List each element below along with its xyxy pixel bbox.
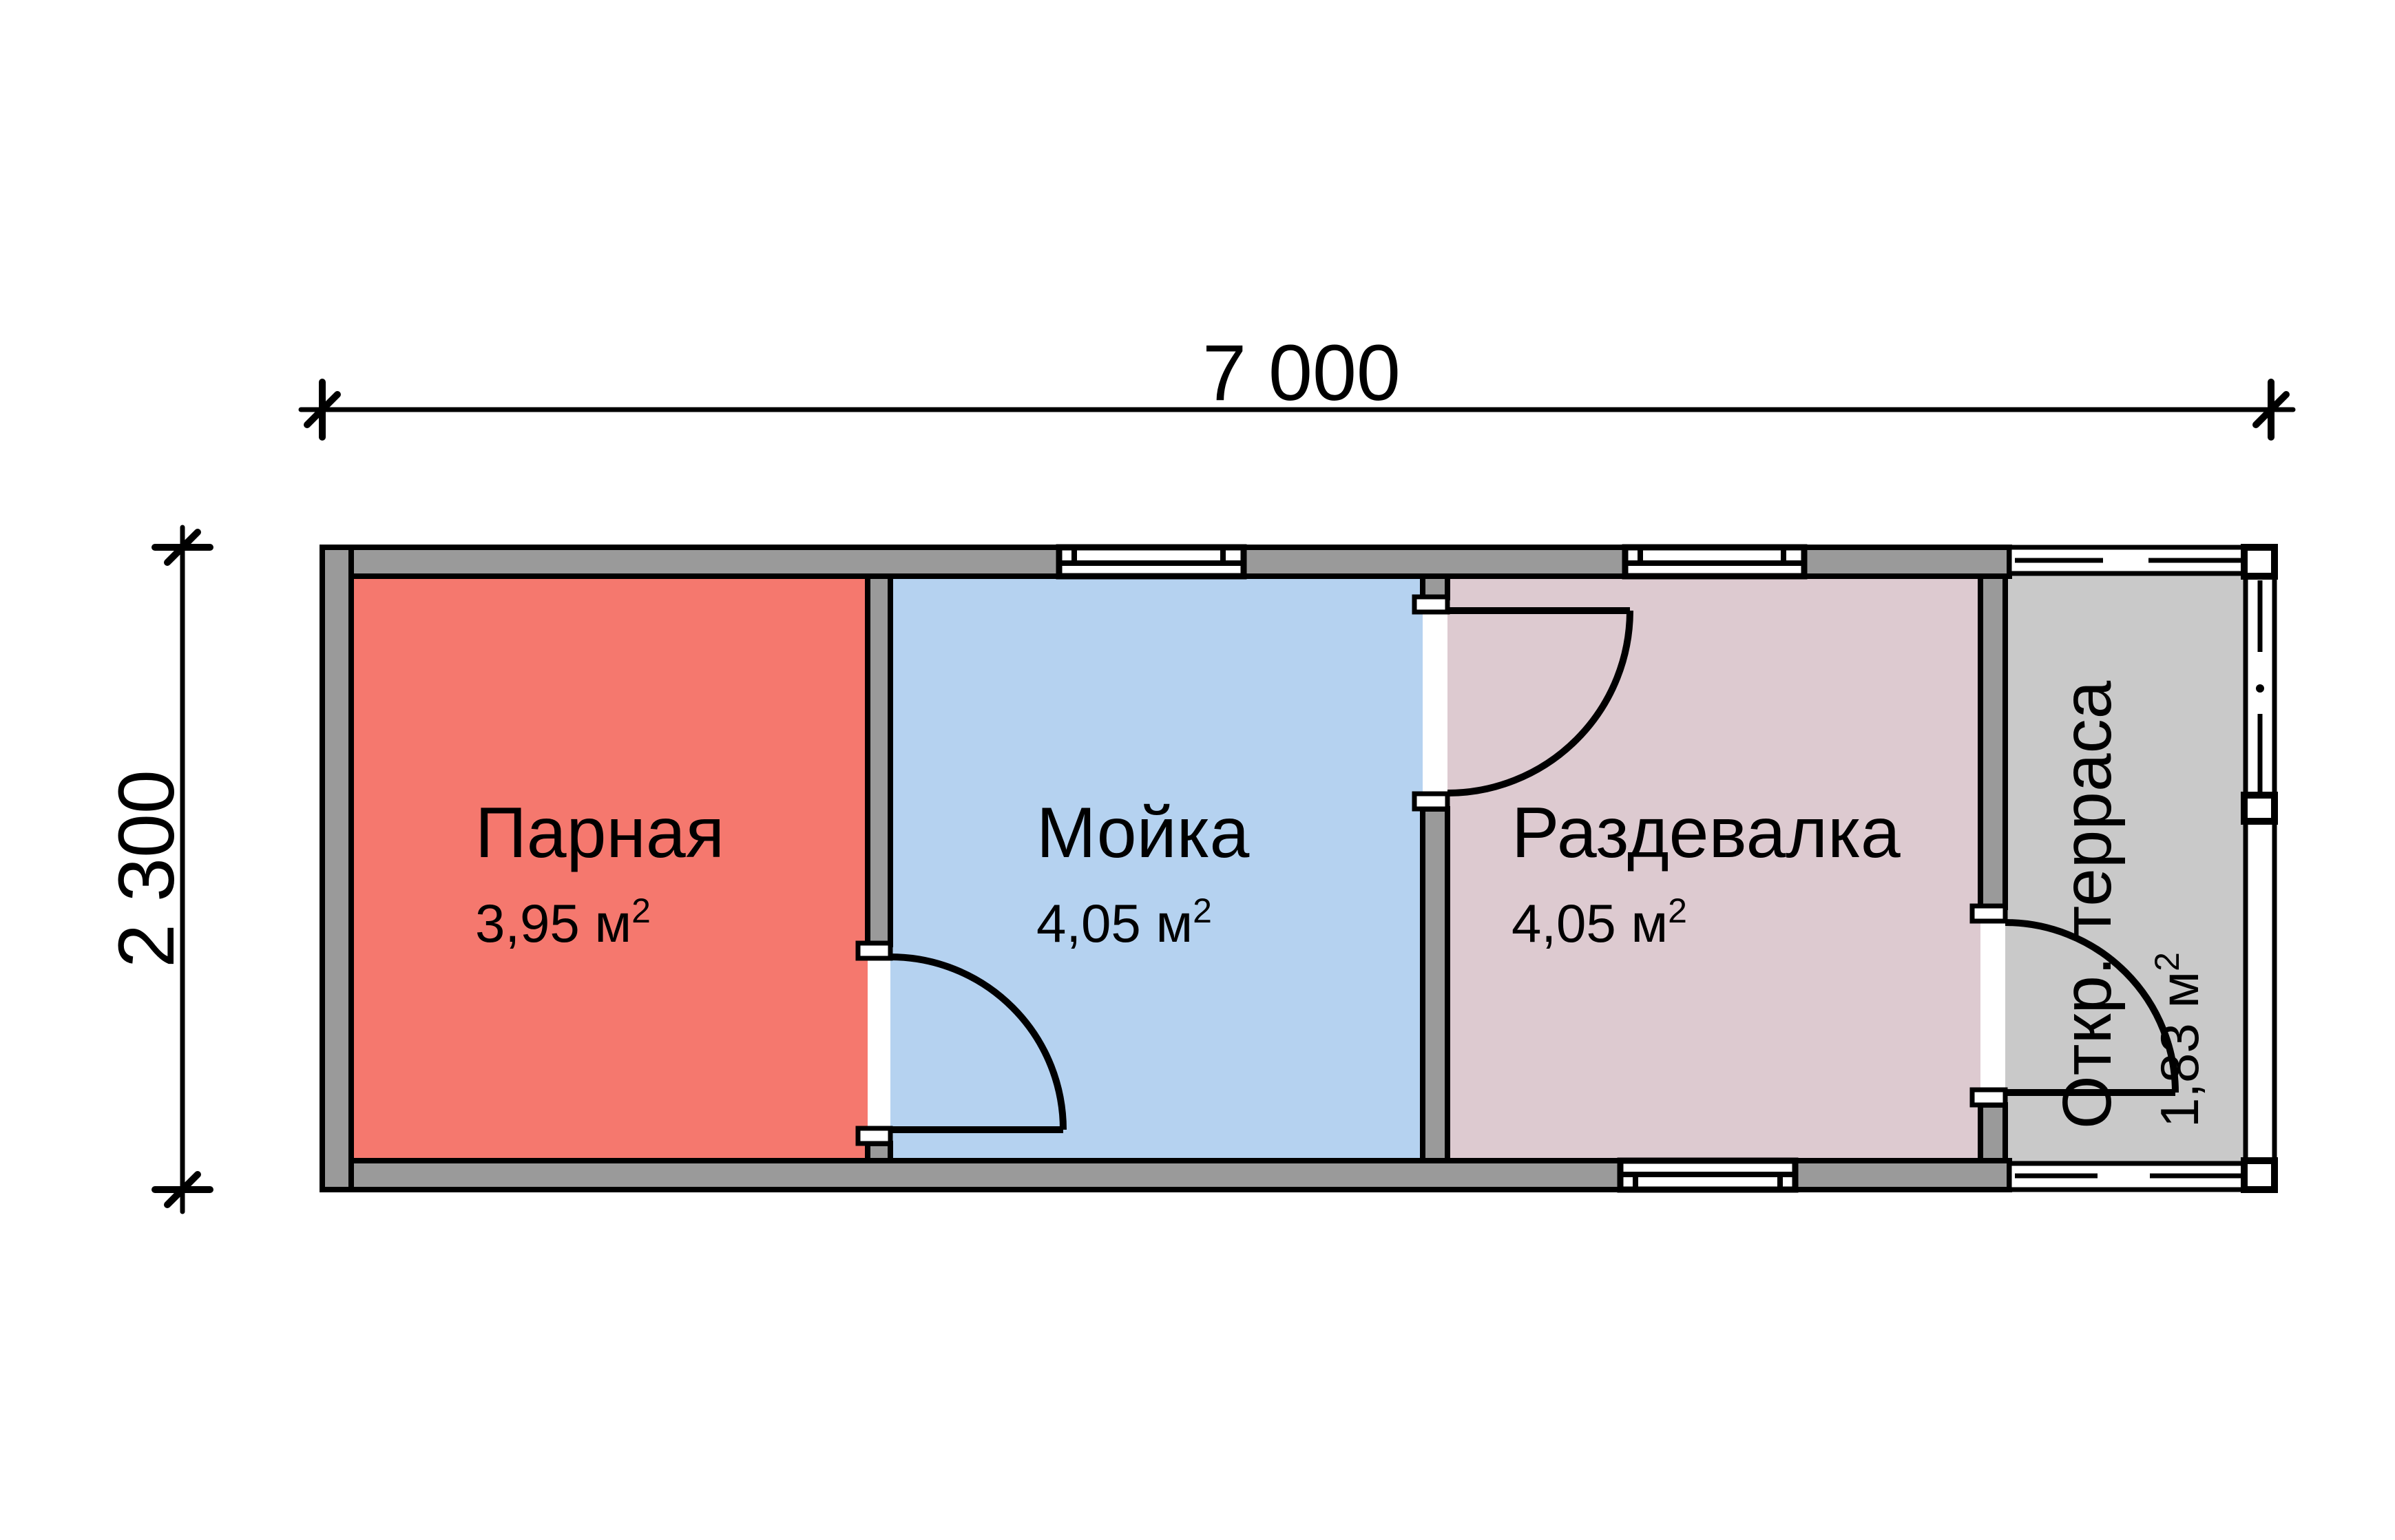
label-terrace: Откр. терраса xyxy=(2049,680,2126,1129)
wall-moyka-razdevalka-upper xyxy=(1423,576,1447,598)
dimension-height-label: 2 300 xyxy=(103,770,191,968)
wall-razdevalka-terrace-upper xyxy=(1980,576,2005,907)
area-razdevalka: 4,05 м2 xyxy=(1512,892,1687,953)
window-top-razdevalka xyxy=(1625,547,1804,576)
wall-parnaya-moyka-upper xyxy=(868,576,890,945)
label-moyka: Мойка xyxy=(1036,793,1250,873)
window-bottom-razdevalka xyxy=(1620,1161,1795,1190)
area-moyka: 4,05 м2 xyxy=(1036,892,1212,953)
terrace-post-bottom xyxy=(2244,1161,2274,1190)
railing-dot xyxy=(2256,684,2264,693)
wall-razdevalka-terrace-lower xyxy=(1980,1105,2005,1161)
label-parnaya: Парная xyxy=(475,793,724,873)
wall-left xyxy=(322,547,351,1190)
label-razdevalka: Раздевалка xyxy=(1512,793,1901,873)
dimension-height: 2 300 xyxy=(103,527,210,1212)
terrace-post-middle xyxy=(2244,795,2274,821)
floor-plan-drawing: 7 000 2 300 Парная 3,95 м2 Мойка 4,05 м2… xyxy=(0,0,2395,1540)
dimension-width-label: 7 000 xyxy=(1202,329,1401,417)
floor-plan-page: 7 000 2 300 Парная 3,95 м2 Мойка 4,05 м2… xyxy=(0,0,2395,1540)
area-terrace: 1,83 м2 xyxy=(2148,952,2210,1128)
area-parnaya: 3,95 м2 xyxy=(475,892,651,953)
wall-moyka-razdevalka-lower xyxy=(1423,809,1447,1161)
terrace-post-top xyxy=(2244,547,2274,576)
dimension-width: 7 000 xyxy=(301,329,2293,437)
wall-parnaya-moyka-lower xyxy=(868,1143,890,1161)
window-top-moyka xyxy=(1059,547,1244,576)
